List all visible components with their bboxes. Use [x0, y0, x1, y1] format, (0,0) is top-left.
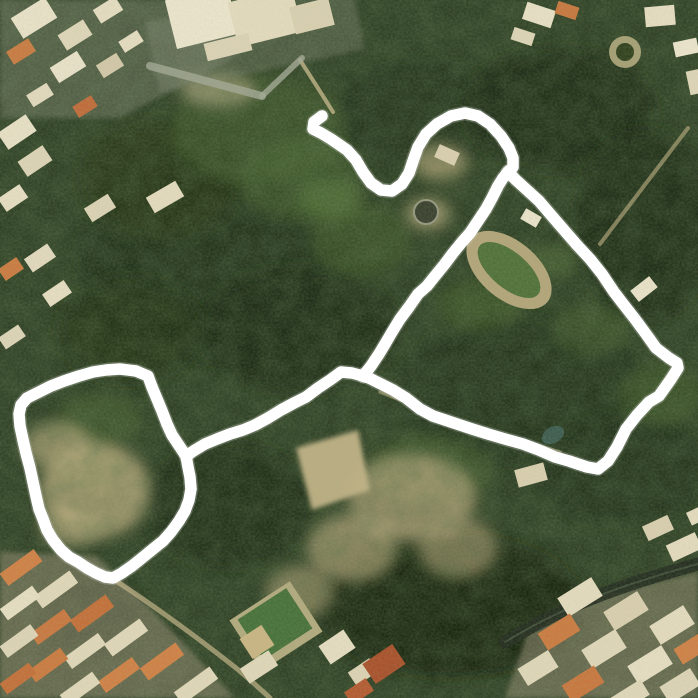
- satellite-map-canvas[interactable]: [0, 0, 698, 698]
- map-svg: [0, 0, 698, 698]
- satellite-grain-texture: [0, 0, 698, 698]
